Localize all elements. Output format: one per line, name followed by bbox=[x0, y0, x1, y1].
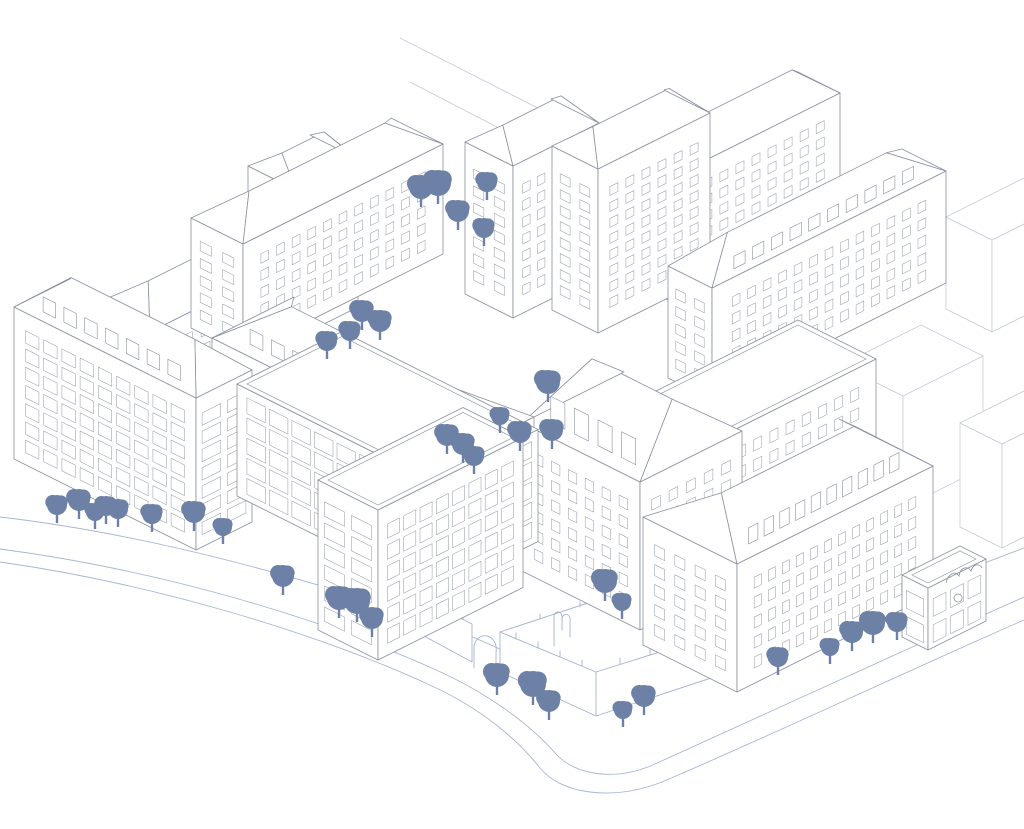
building-layer bbox=[14, 70, 986, 692]
tree-canopy-lobe bbox=[76, 489, 91, 504]
tree-canopy-lobe bbox=[494, 663, 510, 679]
tree-canopy-lobe bbox=[894, 612, 907, 625]
building-face bbox=[552, 146, 598, 333]
street-tree bbox=[483, 663, 510, 695]
tree-canopy-lobe bbox=[481, 218, 494, 231]
tree-canopy-lobe bbox=[484, 172, 497, 185]
tree-canopy-lobe bbox=[460, 433, 475, 448]
tree-canopy-lobe bbox=[530, 672, 547, 689]
tree-canopy-lobe bbox=[546, 690, 561, 705]
building-face bbox=[960, 423, 1002, 548]
street-tree bbox=[612, 701, 632, 727]
tree-canopy-lobe bbox=[621, 701, 633, 713]
street-tree bbox=[819, 638, 839, 664]
tree-canopy-lobe bbox=[221, 518, 233, 530]
building-face bbox=[318, 480, 378, 660]
ruin-detail bbox=[554, 612, 570, 646]
tree-canopy-lobe bbox=[828, 638, 840, 650]
street-tree bbox=[270, 565, 295, 595]
tree-canopy-lobe bbox=[775, 647, 788, 660]
tree-canopy-lobe bbox=[471, 446, 484, 459]
tree-canopy-lobe bbox=[517, 421, 532, 436]
tree-canopy-lobe bbox=[377, 310, 392, 325]
tree-canopy-lobe bbox=[641, 685, 656, 700]
tree-canopy-lobe bbox=[149, 504, 162, 517]
tree-canopy-lobe bbox=[602, 569, 618, 585]
tree-canopy-lobe bbox=[549, 419, 564, 434]
tree-canopy-lobe bbox=[620, 593, 632, 605]
tree-canopy-lobe bbox=[369, 607, 384, 622]
tree-canopy-lobe bbox=[54, 495, 67, 508]
tree-canopy-lobe bbox=[191, 501, 206, 516]
tree-canopy-lobe bbox=[354, 589, 371, 606]
tree-canopy-lobe bbox=[545, 370, 561, 386]
street-tree bbox=[367, 310, 392, 340]
tree-canopy-lobe bbox=[347, 321, 360, 334]
tree-canopy-lobe bbox=[324, 331, 337, 344]
street-tree bbox=[45, 495, 67, 523]
tree-canopy-lobe bbox=[455, 200, 470, 215]
tree-canopy-lobe bbox=[435, 171, 452, 188]
tree-canopy-lobe bbox=[498, 407, 510, 419]
street-tree bbox=[106, 499, 128, 527]
tree-canopy-lobe bbox=[280, 565, 295, 580]
street-tree bbox=[859, 611, 886, 643]
tree-canopy-lobe bbox=[115, 499, 128, 512]
building-context-block-northeast bbox=[946, 173, 1024, 332]
street-tree bbox=[631, 685, 656, 715]
street-tree bbox=[839, 621, 864, 651]
tree-canopy-lobe bbox=[870, 611, 886, 627]
city-axonometric-drawing bbox=[0, 0, 1024, 829]
illustration-canvas bbox=[0, 0, 1024, 829]
street-tree bbox=[536, 690, 561, 720]
